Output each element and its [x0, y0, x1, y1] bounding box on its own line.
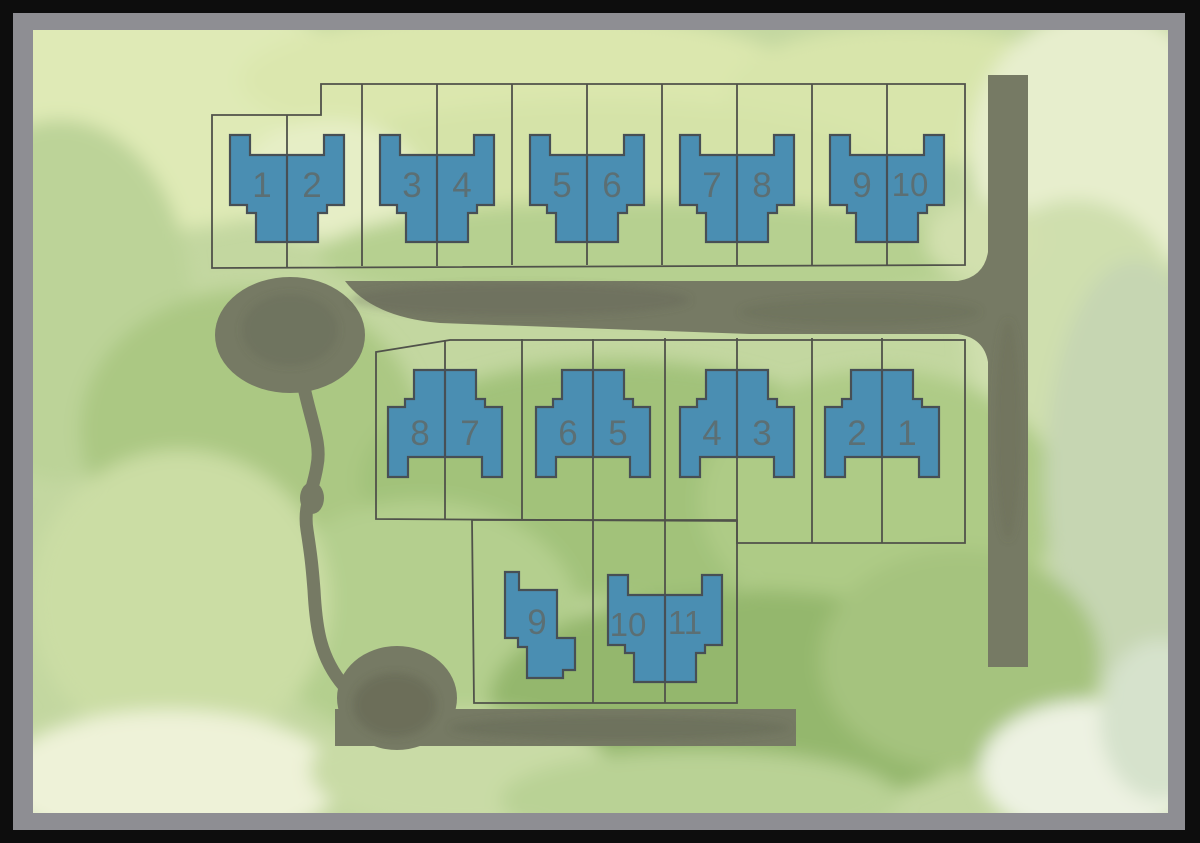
site-plan-map: 1 2 3 4 5 6 7 8 9 10 8 7 6 5 4 3 2 1 9 1…	[0, 0, 1200, 843]
lot-number: 5	[552, 166, 571, 205]
lot-number: 9	[852, 166, 871, 205]
lot-number: 11	[668, 604, 702, 641]
lot-number: 9	[527, 603, 546, 642]
lot-number: 5	[608, 414, 627, 453]
lot-number: 1	[897, 414, 916, 453]
lot-number: 6	[558, 414, 577, 453]
lot-number: 7	[702, 166, 721, 205]
footpath-knot	[300, 482, 324, 514]
lot-number: 4	[702, 414, 721, 453]
lot-number: 3	[402, 166, 421, 205]
site-plan-page: 1 2 3 4 5 6 7 8 9 10 8 7 6 5 4 3 2 1 9 1…	[0, 0, 1200, 843]
lot-number: 2	[847, 414, 866, 453]
lot-number: 6	[602, 166, 621, 205]
lot-number: 1	[252, 166, 271, 205]
lot-number: 2	[302, 166, 321, 205]
lot-number: 8	[752, 166, 771, 205]
lot-number: 4	[452, 166, 471, 205]
lot-number: 10	[610, 606, 647, 643]
lot-number: 10	[892, 166, 929, 203]
map-area: 1 2 3 4 5 6 7 8 9 10 8 7 6 5 4 3 2 1 9 1…	[0, 0, 1200, 843]
lot-number: 7	[460, 414, 479, 453]
lot-number: 8	[410, 414, 429, 453]
lot-number: 3	[752, 414, 771, 453]
